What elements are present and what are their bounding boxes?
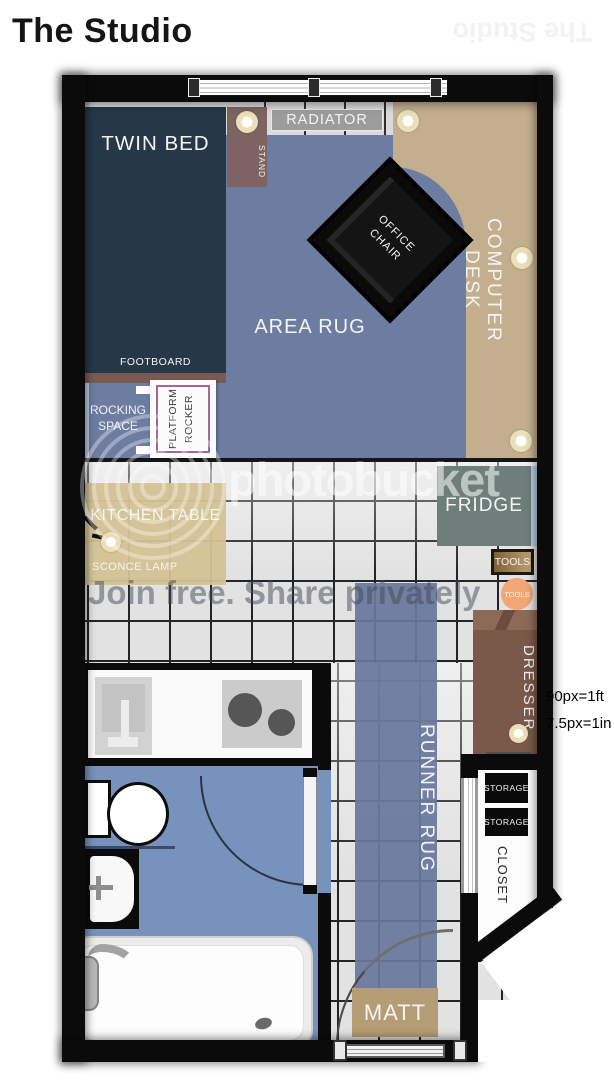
window-mullion [188,78,200,97]
burner-icon [268,709,295,736]
counter-sink-unit [95,677,152,755]
bathroom-sink [85,849,139,929]
area-rug-label: AREA RUG [230,316,390,339]
entry-door-post [453,1040,467,1061]
stand-label: STAND [227,139,267,185]
stand-lamp-icon [236,111,258,133]
matt-label: MATT [364,1000,426,1026]
faucet-icon [89,885,113,890]
matt: MATT [352,988,438,1037]
page-title: The Studio [12,12,193,51]
platform-rocker: PLATFORM ROCKER [150,380,216,458]
entry-door-post [333,1040,347,1061]
computer-desk-label: COMPUTER DESK [478,185,504,375]
platform-rocker-label: PLATFORM ROCKER [150,380,216,458]
outside-cover [478,1000,558,1062]
desk-lamp-icon [510,430,532,452]
closet-label: CLOSET [490,840,510,910]
wall-dresser-bottom [461,754,537,770]
scale-line-1: 90px=1ft [546,688,614,705]
floorplan-page: The Studio The Studio COMPUTER DESK AREA… [0,0,614,1080]
twin-bed-label: TWIN BED [85,132,226,156]
mirrored-title-watermark: The Studio [424,16,592,47]
window-mullion [308,78,320,97]
desk-lamp-icon [397,110,419,132]
stove [222,680,302,748]
burner-icon [228,693,262,727]
desk-lamp-icon [511,247,533,269]
wall-left [62,75,85,1062]
storage-box-bottom: STORAGE [485,808,528,836]
bathtub [70,936,313,1050]
runner-rug: RUNNER RUG [355,583,437,988]
sconce-lamp-icon [101,532,121,552]
radiator-label: RADIATOR [271,109,383,131]
scale-note: 90px=1ft 7.5px=1in [546,688,614,732]
kitchen-table-label: KITCHEN TABLE [85,507,226,525]
footboard-label: FOOTBOARD [85,356,226,368]
wall-right [537,75,553,908]
window-mullion [430,78,442,97]
wall-hall-right [461,897,478,1040]
door-cap [303,768,317,777]
sconce-lamp-label: SCONCE LAMP [92,561,178,573]
bath-hall-wall-lower [318,893,331,1045]
bathroom-door-leaf [303,776,317,886]
bath-door-gap [318,770,331,893]
dresser-lamp-icon [509,724,528,743]
toilet-bowl [107,782,169,846]
storage-box-top: STORAGE [485,773,528,803]
closet-door [461,778,478,895]
rocker-rail [136,386,151,394]
dresser-label: DRESSER [473,638,537,738]
twin-bed: TWIN BED FOOTBOARD [85,107,226,373]
entry-door-sill [345,1044,445,1058]
runner-rug-label: RUNNER RUG [355,683,437,913]
door-cap [303,885,317,894]
rocker-rail [136,446,151,454]
tools-bin: TOOLS [501,578,533,610]
scale-line-2: 7.5px=1in [546,715,614,732]
bath-hall-wall-upper [318,663,331,770]
fridge: FRIDGE [437,466,531,546]
tools-box: TOOLS [491,549,534,575]
fridge-label: FRIDGE [445,495,523,517]
rocking-space-label: ROCKING SPACE [88,403,148,434]
